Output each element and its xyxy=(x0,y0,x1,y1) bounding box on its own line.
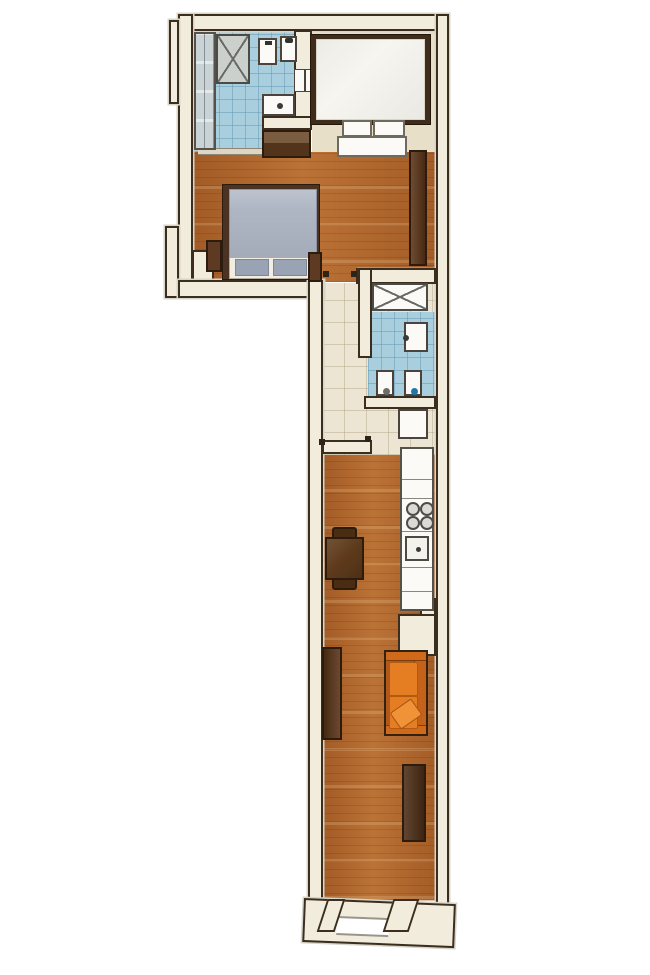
kitchen-door-nub-right xyxy=(365,436,371,442)
wc-washbasin xyxy=(404,322,428,352)
wall-left-pilaster-lower xyxy=(165,226,179,298)
toilet xyxy=(258,38,277,65)
wc-toilet xyxy=(376,370,394,396)
nightstand-left xyxy=(206,240,222,272)
sofa-cushion-1 xyxy=(389,662,418,696)
wall-niche-shelf-left xyxy=(294,69,305,92)
wall-basin xyxy=(280,36,297,62)
orange-sofa xyxy=(384,650,428,736)
cushion-bench xyxy=(337,136,407,157)
wardrobe xyxy=(409,150,427,266)
bedroom-door-nub-right xyxy=(351,271,357,277)
wall-right xyxy=(436,14,449,946)
wall-wc-bottom xyxy=(364,396,436,409)
cooktop-burner-4 xyxy=(420,516,434,530)
bed-pillow-right xyxy=(273,259,307,276)
entry-door-opening xyxy=(336,916,389,937)
wall-narrow-left xyxy=(308,280,323,940)
dining-table xyxy=(325,537,364,580)
chest-of-drawers xyxy=(262,130,311,158)
cooktop-burner-3 xyxy=(406,516,420,530)
sofa-armrest-top xyxy=(386,652,426,661)
cooktop-burner-2 xyxy=(420,502,434,516)
sideboard xyxy=(322,647,342,740)
bedroom-door-nub-left xyxy=(323,271,329,277)
kitchen-door-nub-left xyxy=(319,439,325,445)
bed-duvet xyxy=(229,189,317,259)
wall-left-pilaster-upper xyxy=(169,20,179,104)
built-in-closet xyxy=(372,283,428,311)
cooktop-burner-1 xyxy=(406,502,420,516)
bench-cushion-left xyxy=(342,120,372,137)
floor-plan xyxy=(0,0,650,975)
glass-shower-screen xyxy=(194,32,216,150)
kitchen-sink xyxy=(405,536,429,561)
refrigerator xyxy=(398,409,428,439)
bed-pillow-left xyxy=(235,259,269,276)
double-bed-gray xyxy=(222,184,320,280)
washing-machine xyxy=(262,94,295,116)
wc-bidet xyxy=(404,370,422,396)
wall-bedroom-bottom xyxy=(178,280,324,298)
bench-cushion-right xyxy=(373,120,405,137)
wall-left xyxy=(178,14,193,298)
nightstand-right xyxy=(308,252,322,282)
shower-tray xyxy=(216,34,250,84)
wall-wc-left-stub xyxy=(358,268,372,358)
tv-cabinet xyxy=(402,764,426,842)
double-bed-white xyxy=(310,34,431,125)
wall-top xyxy=(178,14,448,31)
wall-kitchen-hall xyxy=(322,440,372,454)
wall-bathroom-bottom xyxy=(262,116,312,130)
